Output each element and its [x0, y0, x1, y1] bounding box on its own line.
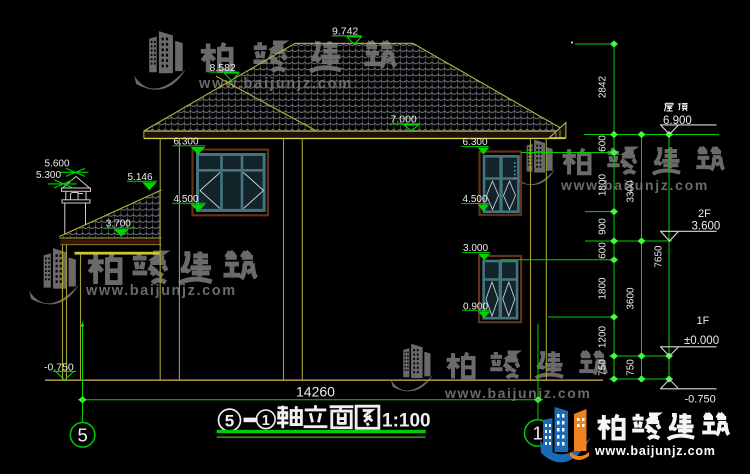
svg-text:3.600: 3.600	[692, 221, 721, 233]
svg-text:4.500: 4.500	[174, 194, 199, 205]
svg-text:2842: 2842	[598, 75, 609, 98]
svg-text:1800: 1800	[598, 277, 609, 300]
svg-text:1: 1	[533, 423, 543, 444]
svg-text:4.500: 4.500	[463, 194, 488, 205]
svg-text:14260: 14260	[296, 384, 335, 400]
svg-text:3600: 3600	[626, 287, 637, 310]
svg-text:3.000: 3.000	[463, 243, 488, 254]
svg-text:www.baijunjz.com: www.baijunjz.com	[85, 283, 237, 299]
svg-text:1800: 1800	[598, 173, 609, 196]
svg-text:7650: 7650	[654, 245, 665, 268]
svg-text:1: 1	[262, 413, 270, 429]
svg-text:www.baijunjz.com: www.baijunjz.com	[444, 385, 591, 401]
svg-text:1:100: 1:100	[382, 410, 431, 431]
svg-text:750: 750	[626, 359, 637, 376]
svg-text:6.300: 6.300	[174, 136, 199, 147]
svg-text:www.baijunjz.com: www.baijunjz.com	[594, 444, 716, 458]
svg-text:www.baijunjz.com: www.baijunjz.com	[198, 76, 353, 92]
svg-text:750: 750	[598, 359, 609, 376]
svg-text:600: 600	[598, 135, 609, 152]
svg-text:3300: 3300	[626, 180, 637, 203]
svg-text:5.600: 5.600	[45, 159, 70, 170]
svg-text:0.900: 0.900	[463, 301, 488, 312]
svg-text:900: 900	[598, 218, 609, 235]
svg-text:9.742: 9.742	[332, 26, 358, 38]
svg-text:5.300: 5.300	[36, 170, 61, 181]
svg-text:5: 5	[77, 424, 87, 445]
svg-text:2F: 2F	[698, 208, 711, 220]
svg-text:8.582: 8.582	[210, 62, 236, 74]
svg-text:600: 600	[598, 242, 609, 259]
svg-text:1F: 1F	[697, 315, 710, 327]
svg-text:6.900: 6.900	[663, 115, 692, 127]
svg-text:-0.750: -0.750	[44, 362, 74, 374]
svg-text:7.000: 7.000	[391, 114, 417, 126]
svg-text:±0.000: ±0.000	[684, 335, 719, 347]
svg-text:1200: 1200	[598, 325, 609, 348]
svg-text:3.700: 3.700	[106, 219, 131, 230]
svg-text:5.146: 5.146	[128, 172, 153, 183]
svg-text:5: 5	[225, 411, 234, 430]
svg-text:-0.750: -0.750	[685, 394, 716, 406]
svg-text:6.300: 6.300	[463, 137, 488, 148]
